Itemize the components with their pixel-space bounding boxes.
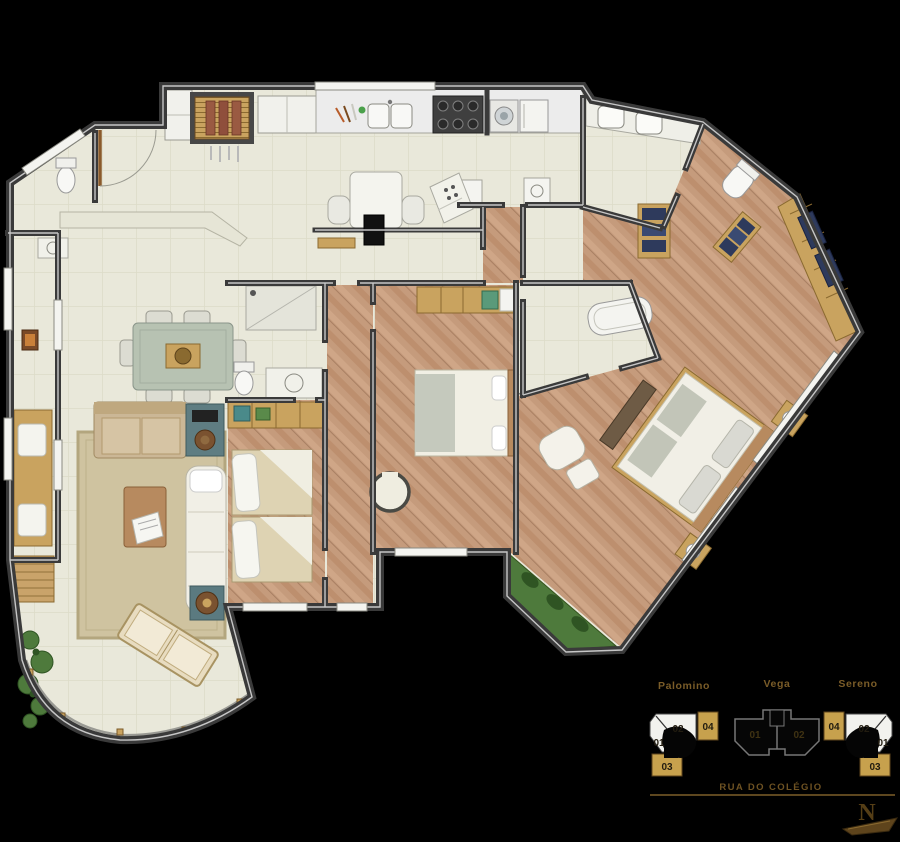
twin-bed-1 xyxy=(232,450,312,515)
wardrobe-shelf xyxy=(228,402,325,428)
double-bed xyxy=(415,370,516,456)
window xyxy=(337,603,367,611)
tv-sideboard xyxy=(186,404,224,456)
unit-number: 01 xyxy=(749,730,761,741)
vanity-sink xyxy=(266,368,322,398)
wardrobe-shelf xyxy=(417,287,516,313)
planter-table xyxy=(190,586,224,620)
chair xyxy=(402,196,424,224)
unit-number: 02 xyxy=(672,724,684,735)
building-label-vega: Vega xyxy=(764,678,791,690)
kitchen-bar-shelf xyxy=(318,238,355,248)
shower-stall xyxy=(246,286,316,330)
floor-plan-scene: Palomino Vega Sereno 02 04 01 03 01 02 xyxy=(0,0,900,842)
unit-number: 02 xyxy=(858,724,870,735)
window xyxy=(315,82,435,90)
left-sideboard xyxy=(14,410,52,546)
window xyxy=(54,300,62,350)
coffee-table xyxy=(124,487,166,547)
chair xyxy=(328,196,350,224)
corridor-wood-floor xyxy=(483,207,523,283)
service-sink xyxy=(524,178,550,204)
window xyxy=(4,418,12,480)
unit-number: 04 xyxy=(828,722,840,733)
unit-number: 02 xyxy=(793,730,805,741)
street-label: RUA DO COLÉGIO xyxy=(719,782,822,793)
tub-chair xyxy=(371,472,409,511)
unit-number: 01 xyxy=(653,738,665,749)
window xyxy=(395,548,467,556)
window xyxy=(243,603,307,611)
dining-area xyxy=(120,311,246,403)
unit-number: 03 xyxy=(869,762,881,773)
sofa xyxy=(94,402,186,458)
unit-number: 04 xyxy=(702,722,714,733)
building-label-palomino: Palomino xyxy=(658,680,710,692)
unit-number: 03 xyxy=(661,762,673,773)
cooktop xyxy=(433,96,483,133)
washing-machine xyxy=(490,100,518,132)
north-letter: N xyxy=(858,800,876,826)
window xyxy=(54,440,62,490)
toilet xyxy=(234,362,254,395)
shelf-stack xyxy=(638,204,670,258)
hallway-wood-floor xyxy=(327,285,373,607)
washbasin xyxy=(38,238,68,258)
window xyxy=(4,268,12,330)
twin-bed-2 xyxy=(232,517,312,582)
unit-number: 01 xyxy=(877,738,889,749)
toilet xyxy=(57,167,75,193)
building-label-sereno: Sereno xyxy=(838,678,877,690)
